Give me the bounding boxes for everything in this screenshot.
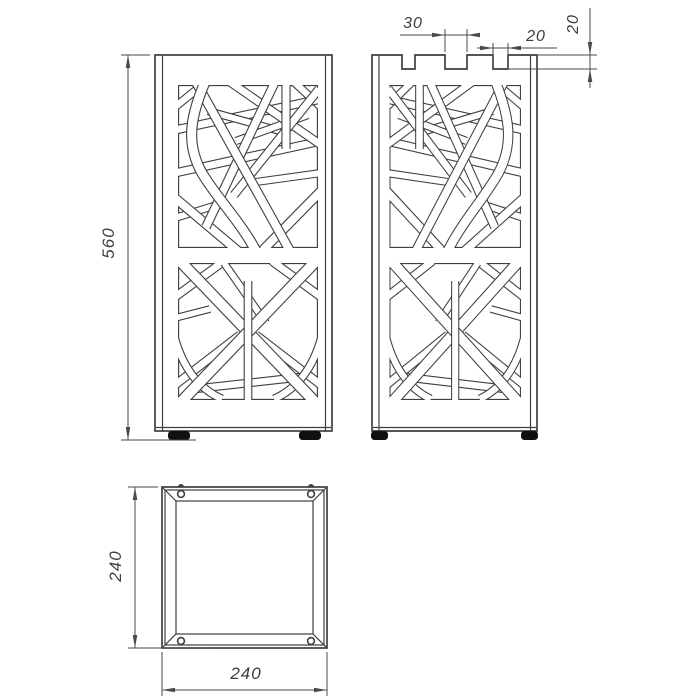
dim-label-base-width: 240 (229, 664, 261, 683)
base-inner-square (176, 501, 313, 634)
arrowhead-up (588, 69, 593, 82)
arrowhead-left (162, 688, 175, 693)
front-right-foot (299, 431, 321, 440)
side-lattice-pattern (387, 82, 524, 403)
dim-label-height: 560 (99, 227, 118, 258)
dim-slot-20: 20 (477, 28, 557, 69)
arrowhead-down (588, 42, 593, 55)
miter-top-left (162, 487, 176, 501)
dim-label-slot-20: 20 (525, 28, 546, 45)
mounting-hole-bottom-right (308, 638, 315, 645)
arrowhead-right (480, 46, 493, 51)
arrowhead-down (126, 427, 131, 440)
miter-bottom-left (162, 634, 176, 648)
front-left-foot (168, 431, 190, 440)
front-lattice-pattern (175, 82, 321, 403)
side-right-foot (521, 431, 538, 440)
front-view (155, 55, 332, 440)
arrowhead-left (508, 46, 521, 51)
arrowhead-right (314, 688, 327, 693)
arrowhead-up (133, 487, 138, 500)
arrowhead-left (467, 33, 480, 38)
base-outer-inner-line (165, 490, 324, 645)
dim-label-depth-20: 20 (565, 14, 582, 35)
side-view (371, 55, 538, 440)
mounting-hole-bottom-left (178, 638, 185, 645)
arrowhead-down (133, 635, 138, 648)
mounting-hole-top-left (178, 491, 185, 498)
top-view (162, 484, 327, 648)
dim-base-240-vertical: 240 (106, 487, 210, 648)
technical-drawing-sheet: 560 30 20 20 240 (0, 0, 700, 700)
dim-base-240-horizontal: 240 (162, 652, 327, 696)
arrowhead-up (126, 55, 131, 68)
foot-bump-left (178, 484, 184, 487)
dim-slot-30: 30 (400, 15, 480, 52)
arrowhead-right (432, 33, 445, 38)
dim-label-base-depth: 240 (106, 550, 125, 582)
mounting-hole-top-right (308, 491, 315, 498)
dim-label-slot-30: 30 (403, 15, 423, 32)
base-outer-outline (162, 487, 327, 648)
foot-bump-right (308, 484, 314, 487)
side-left-foot (371, 431, 388, 440)
orthographic-views-drawing: 560 30 20 20 240 (0, 0, 700, 700)
